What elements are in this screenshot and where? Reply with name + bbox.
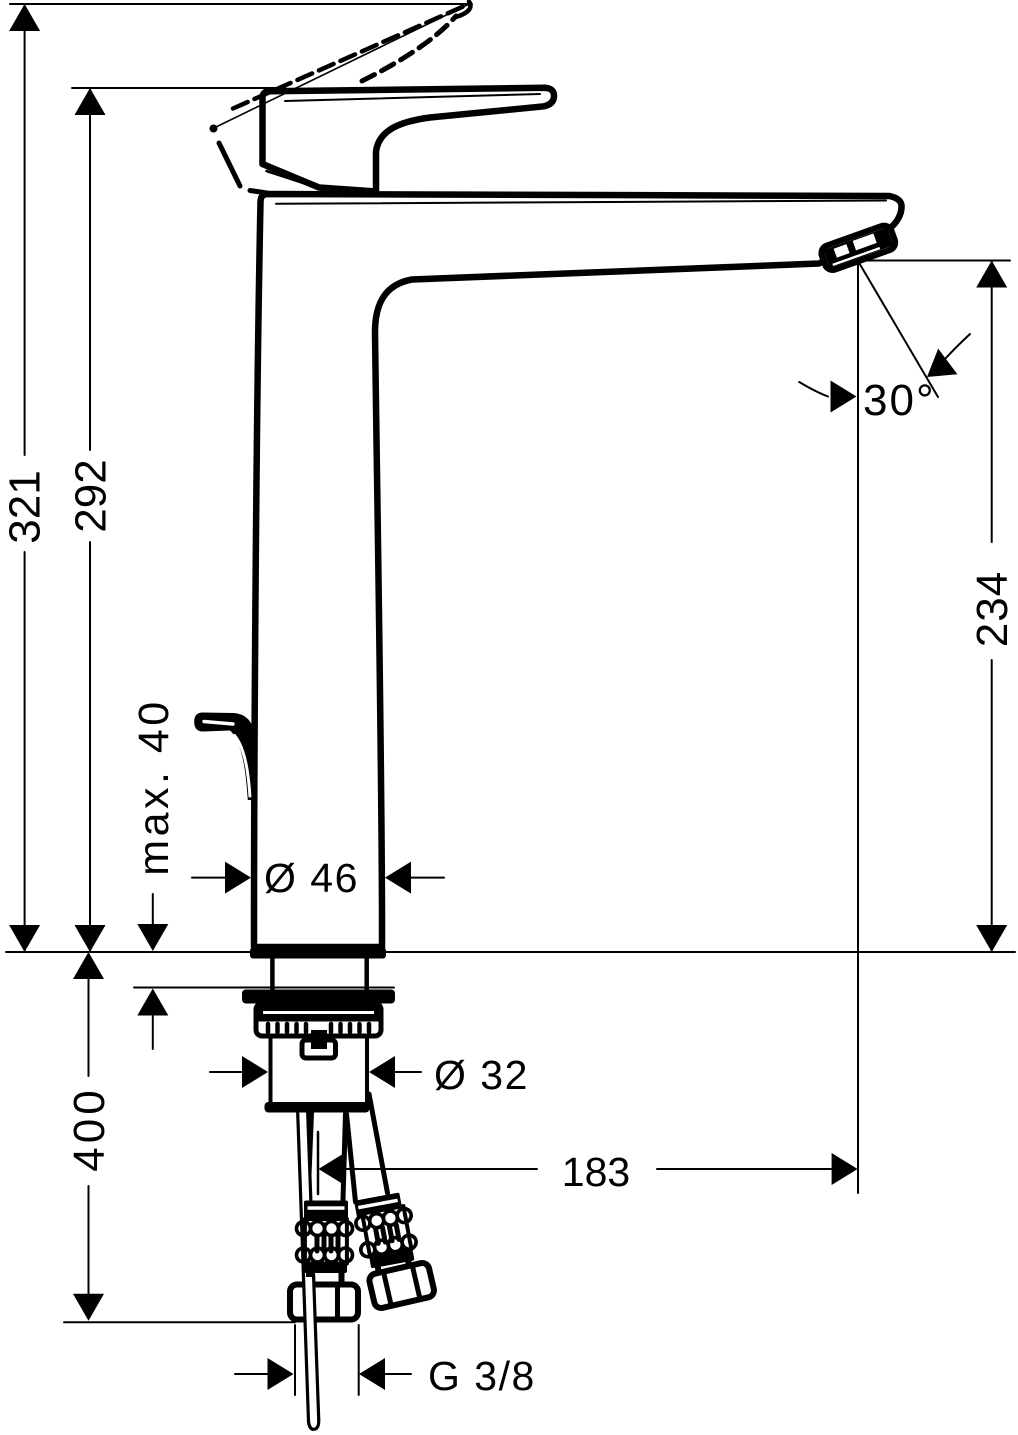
svg-text:400: 400 bbox=[65, 1086, 114, 1171]
svg-text:G 3/8: G 3/8 bbox=[428, 1353, 536, 1399]
svg-text:Ø 46: Ø 46 bbox=[264, 855, 359, 901]
svg-text:292: 292 bbox=[67, 459, 116, 532]
svg-text:234: 234 bbox=[968, 571, 1017, 647]
svg-text:max. 40: max. 40 bbox=[130, 698, 178, 875]
svg-text:183: 183 bbox=[562, 1149, 630, 1195]
svg-text:321: 321 bbox=[1, 470, 50, 543]
svg-text:Ø 32: Ø 32 bbox=[434, 1052, 529, 1098]
svg-text:30°: 30° bbox=[863, 376, 936, 425]
